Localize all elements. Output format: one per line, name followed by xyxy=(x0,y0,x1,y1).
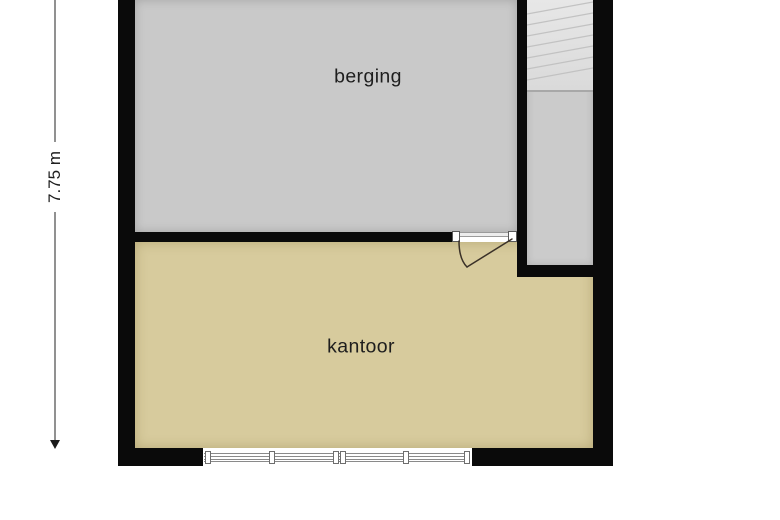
staircase xyxy=(527,0,593,92)
wall-berging-kantoor xyxy=(135,232,452,242)
dimension-label: 7.75 m xyxy=(42,142,68,212)
wall-bottom-right xyxy=(472,448,613,466)
window-mullion xyxy=(340,451,346,464)
room-berging-floor xyxy=(135,0,517,232)
wall-bottom-left xyxy=(118,448,203,466)
window-mullion xyxy=(464,451,470,464)
window-mullion xyxy=(269,451,275,464)
dimension-line xyxy=(54,0,56,447)
dimension-arrow-down-icon xyxy=(50,440,60,449)
window-mullion xyxy=(333,451,339,464)
window-mullion xyxy=(205,451,211,464)
wall-right xyxy=(593,0,613,466)
wall-left xyxy=(118,0,135,466)
window-mullion xyxy=(403,451,409,464)
wall-corridor-bottom xyxy=(517,265,613,277)
stairs-treads-icon xyxy=(527,0,593,88)
floorplan-canvas: 7.75 m xyxy=(0,0,780,520)
room-label-kantoor: kantoor xyxy=(327,336,395,359)
door-swing-icon xyxy=(450,230,520,275)
window xyxy=(203,448,472,466)
room-label-berging: berging xyxy=(334,66,402,89)
